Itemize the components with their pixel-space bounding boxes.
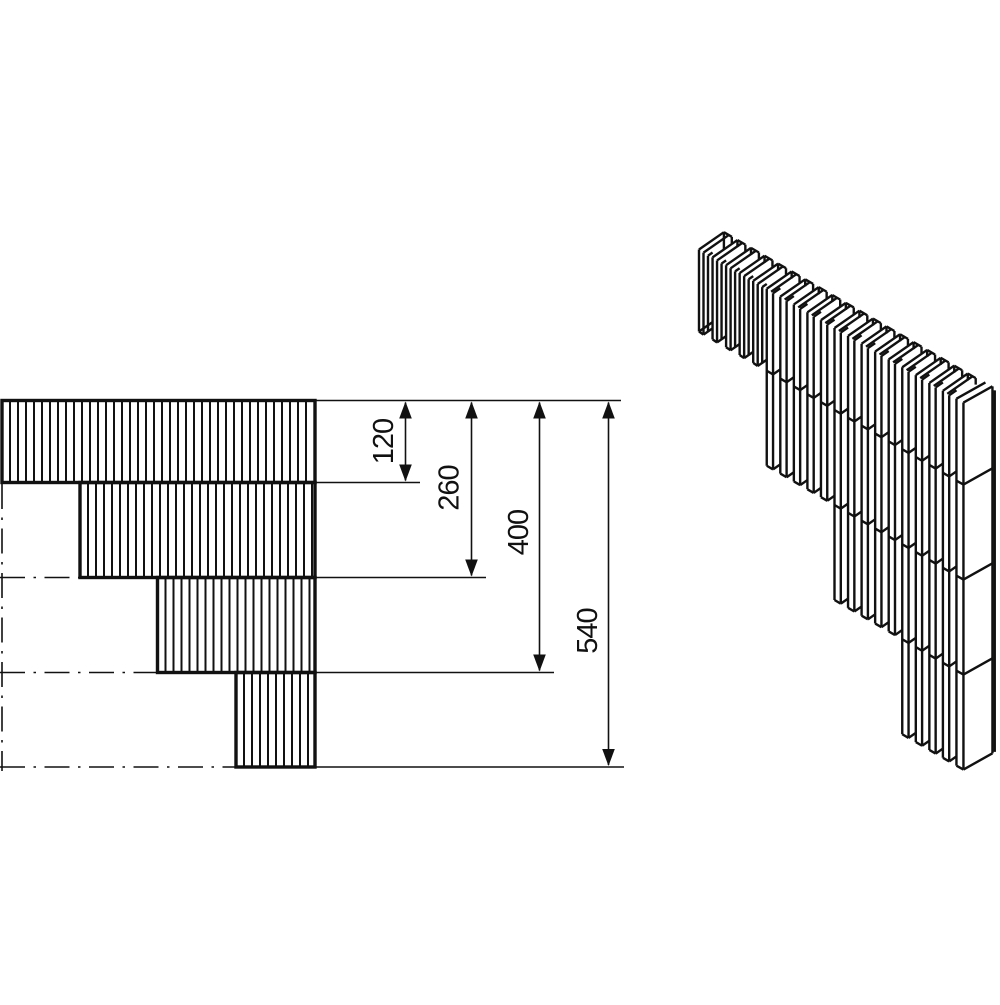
svg-text:400: 400 bbox=[503, 510, 535, 555]
svg-text:120: 120 bbox=[368, 419, 400, 464]
svg-text:540: 540 bbox=[572, 608, 604, 653]
svg-text:260: 260 bbox=[434, 465, 466, 510]
